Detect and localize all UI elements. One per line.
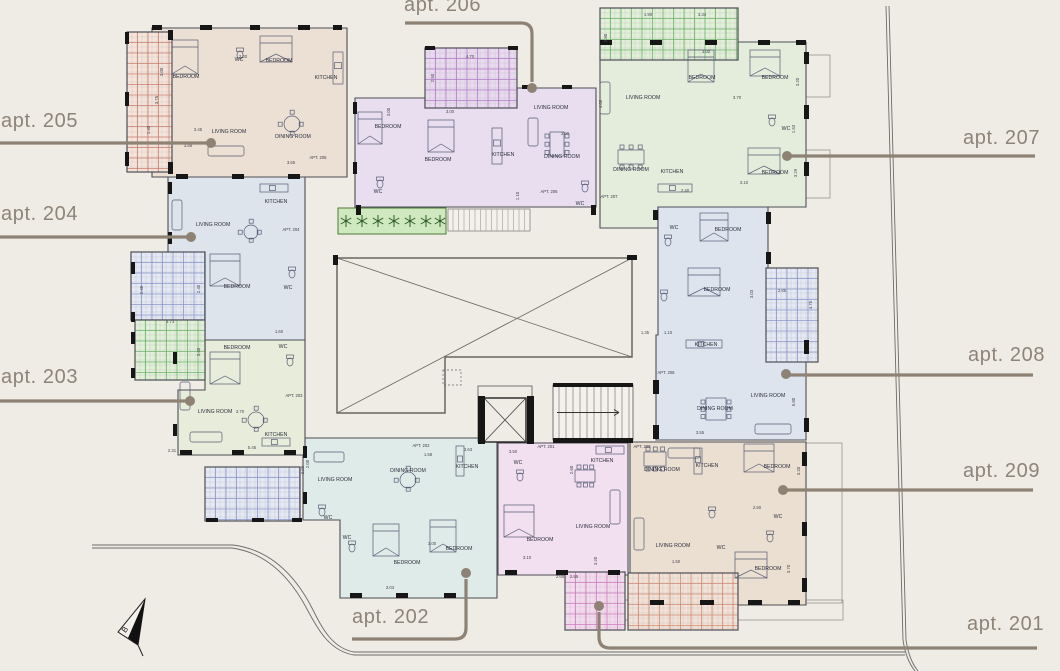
entry-steps — [448, 209, 530, 231]
dimension-text: 3.34 — [698, 12, 707, 17]
leader-dot-c203 — [185, 396, 195, 406]
leader-dot-c204 — [186, 232, 196, 242]
room-label: LIVING ROOM — [534, 105, 569, 111]
dimension-text: 3.40 — [196, 347, 201, 356]
dimension-text: 4.00 — [598, 99, 603, 108]
plant-center — [409, 220, 411, 222]
wall-segment — [804, 340, 809, 354]
room-label: WC — [576, 201, 585, 207]
unit-apt-203 — [135, 320, 305, 521]
room-label: DINING ROOM — [275, 134, 311, 140]
apt-label: apt. 209 — [963, 460, 1040, 482]
dimension-text: 3.10 — [740, 180, 749, 185]
balcony — [135, 320, 205, 380]
wall-segment — [125, 32, 129, 44]
wall-segment — [788, 600, 800, 605]
room-label: BEDROOM — [173, 74, 200, 80]
dimension-text: 1.40 — [146, 125, 151, 134]
unit-apt-201 — [498, 443, 628, 630]
dimension-text: 1.60 — [275, 329, 284, 334]
apt-label: apt. 206 — [404, 0, 481, 16]
room-label: BEDROOM — [224, 284, 251, 290]
wall-segment — [168, 162, 173, 174]
wall-segment — [173, 352, 177, 364]
wall-segment — [505, 570, 517, 575]
balcony — [205, 467, 300, 521]
room-label: LIVING ROOM — [198, 409, 233, 415]
apt-label: apt. 205 — [1, 110, 78, 132]
dimension-text: 3.00 — [159, 67, 164, 76]
unit-area — [600, 42, 806, 228]
leader-dot-c209 — [778, 485, 788, 495]
plant-center — [345, 220, 347, 222]
wall-segment — [131, 368, 135, 378]
steps-outline — [448, 209, 530, 231]
room-label: DINING ROOM — [544, 154, 580, 160]
leader-dot-c201 — [594, 601, 604, 611]
dimension-text: 5.80 — [791, 397, 796, 406]
dimension-text: 2.40 — [239, 54, 248, 59]
wall-segment — [653, 210, 658, 220]
dimension-text: 2.65 — [556, 574, 565, 579]
room-label: DINING ROOM — [697, 406, 733, 412]
dimension-text: 3.00 — [428, 541, 437, 546]
room-label: BEDROOM — [689, 75, 716, 81]
dimension-text: 2.50 — [430, 73, 435, 82]
room-label: BEDROOM — [527, 537, 554, 543]
room-label: LIVING ROOM — [576, 524, 611, 530]
room-label: BEDROOM — [394, 560, 421, 566]
wall-segment — [284, 450, 296, 455]
wall-segment — [804, 105, 809, 119]
dimension-text: 3.55 — [696, 430, 705, 435]
wall-segment — [804, 418, 809, 432]
wall-segment — [608, 570, 620, 575]
wall-segment — [131, 262, 135, 274]
planter — [338, 208, 446, 234]
dimension-text: 3.73 — [166, 319, 175, 324]
dimension-text: 3.00 — [561, 131, 570, 136]
unit-ref-text: APT. 209 — [634, 444, 652, 449]
unit-apt-207 — [600, 8, 806, 228]
wall-segment — [350, 593, 362, 598]
wall-segment — [553, 383, 633, 387]
wall-segment — [591, 205, 596, 215]
balcony — [127, 32, 172, 172]
unit-ref-text: APT. 208 — [658, 370, 676, 375]
dimension-text: 3.65 — [287, 160, 296, 165]
room-label: WC — [774, 514, 783, 520]
room-label: BEDROOM — [425, 157, 452, 163]
apt-callout-205: apt. 205 — [1, 110, 78, 133]
wall-segment — [180, 450, 192, 455]
room-label: KITCHEN — [265, 199, 288, 205]
planter-bed — [338, 208, 446, 234]
dimension-text: 1.35 — [641, 330, 650, 335]
room-label: BEDROOM — [762, 170, 789, 176]
dimension-text: 3.00 — [702, 49, 711, 54]
wall-segment — [748, 600, 762, 605]
dimension-text: 3.20 — [593, 556, 598, 565]
room-label: DINING ROOM — [613, 167, 649, 173]
wall-segment — [131, 332, 135, 344]
dimension-text: 2.40 — [681, 188, 690, 193]
apt-label: apt. 204 — [1, 203, 78, 225]
leader-dot-c205 — [206, 138, 216, 148]
north-arrow: B — [118, 599, 145, 656]
wall-segment — [766, 252, 771, 264]
room-label: LIVING ROOM — [318, 477, 353, 483]
courtyard-diagonal — [337, 258, 632, 357]
wall-segment — [356, 205, 361, 215]
plant-center — [377, 220, 379, 222]
dimension-text: 5.45 — [248, 445, 257, 450]
plant-center — [361, 220, 363, 222]
room-label: BEDROOM — [764, 464, 791, 470]
dimension-text: 2.00 — [305, 459, 310, 468]
dimension-text: 4.75 — [808, 300, 813, 309]
wall-segment — [303, 446, 307, 458]
wall-segment — [804, 162, 809, 176]
wall-segment — [627, 255, 637, 260]
unit-ref-text: APT. 204 — [283, 227, 301, 232]
unit-ref-text: APT. 202 — [413, 443, 431, 448]
wall-segment — [168, 30, 173, 40]
leader-dot-c206 — [527, 83, 537, 93]
dimension-text: 3.75 — [154, 95, 159, 104]
balcony — [600, 8, 738, 60]
apt-callout-207: apt. 207 — [963, 127, 1040, 150]
dimension-text: 3.20 — [795, 77, 800, 86]
room-label: KITCHEN — [315, 75, 338, 81]
wall-segment — [508, 46, 518, 50]
wall-segment — [396, 593, 408, 598]
leader-dot-c207 — [782, 151, 792, 161]
apt-callout-201: apt. 201 — [967, 613, 1044, 636]
staircase — [553, 385, 633, 440]
room-label: BEDROOM — [762, 75, 789, 81]
dimension-text: 3.70 — [786, 564, 791, 573]
plant-center — [439, 220, 441, 222]
wall-segment — [444, 593, 456, 598]
unit-ref-text: APT. 201 — [538, 444, 556, 449]
room-label: BEDROOM — [755, 566, 782, 572]
dimension-text: 2.80 — [603, 33, 608, 42]
dimension-text: 3.70 — [733, 95, 742, 100]
wall-segment — [173, 424, 177, 436]
unit-ref-text: APT. 206 — [541, 189, 559, 194]
wall-segment — [650, 600, 664, 605]
dimension-text: 3.20 — [796, 466, 801, 475]
wall-segment — [200, 25, 212, 30]
apt-label: apt. 202 — [352, 606, 429, 628]
apt-callout-208: apt. 208 — [968, 344, 1045, 367]
leader-dot-c208 — [781, 369, 791, 379]
dimension-text: 4.70 — [466, 54, 475, 59]
room-label: LIVING ROOM — [656, 543, 691, 549]
wall-segment — [562, 85, 572, 89]
room-label: LIVING ROOM — [212, 129, 247, 135]
wall-segment — [232, 174, 244, 179]
wall-segment — [131, 312, 135, 322]
apt-callout-204: apt. 204 — [1, 203, 78, 226]
apt-label: apt. 201 — [967, 613, 1044, 635]
room-label: WC — [782, 126, 791, 132]
room-label: WC — [279, 344, 288, 350]
room-label: LIVING ROOM — [196, 222, 231, 228]
dimension-text: 2.55 — [570, 574, 579, 579]
dimension-text: 3.10 — [523, 555, 532, 560]
wall-segment — [206, 518, 218, 522]
room-label: WC — [343, 535, 352, 541]
room-label: KITCHEN — [661, 169, 684, 175]
room-label: WC — [324, 515, 333, 521]
dimension-text: 1.53 — [791, 124, 796, 133]
wall-segment — [333, 255, 338, 265]
wall-segment — [425, 46, 435, 50]
wall-segment — [232, 450, 244, 455]
wall-segment — [527, 396, 534, 444]
wall-segment — [298, 25, 310, 30]
dimension-text: 3.50 — [509, 449, 518, 454]
wall-segment — [303, 492, 307, 504]
room-label: BEDROOM — [704, 287, 731, 293]
road-line — [886, 6, 915, 671]
wall-segment — [804, 52, 809, 64]
apt-label: apt. 208 — [968, 344, 1045, 366]
dimension-text: 1.90 — [644, 12, 653, 17]
unit-ref-text: APT. 203 — [286, 393, 304, 398]
room-label: WC — [284, 285, 293, 291]
dimension-text: 3.00 — [386, 107, 391, 116]
floor-plan-page: { "title": "apartment floor plan", "pale… — [0, 0, 1060, 671]
wall-segment — [353, 102, 357, 114]
wall-segment — [653, 425, 659, 439]
wall-segment — [252, 518, 264, 522]
room-label: KITCHEN — [456, 464, 479, 470]
plant-center — [425, 220, 427, 222]
wall-segment — [333, 25, 342, 30]
apt-label: apt. 207 — [963, 127, 1040, 149]
dimension-text: 2.85 — [778, 288, 787, 293]
room-label: BEDROOM — [375, 124, 402, 130]
floor-plan-drawing: BEDROOMWCBEDROOMKITCHENLIVING ROOMDINING… — [0, 0, 1060, 671]
wall-segment — [176, 174, 188, 179]
plant-center — [393, 220, 395, 222]
wall-segment — [553, 438, 633, 443]
wall-segment — [353, 162, 357, 174]
dimension-text: 2.48 — [139, 285, 144, 294]
dimension-text: 3.29 — [793, 168, 798, 177]
road-line — [889, 6, 918, 671]
room-label: LIVING ROOM — [626, 95, 661, 101]
apt-callout-209: apt. 209 — [963, 460, 1040, 483]
apt-label: apt. 203 — [1, 366, 78, 388]
room-label: DINING ROOM — [390, 468, 426, 474]
room-label: WC — [670, 225, 679, 231]
room-label: BEDROOM — [266, 58, 293, 64]
dimension-text: 3.00 — [446, 109, 455, 114]
balcony — [766, 268, 818, 362]
wall-segment — [802, 522, 807, 536]
dimension-text: 3.03 — [386, 585, 395, 590]
apt-callout-206: apt. 206 — [404, 0, 481, 17]
dimension-text: 2.31 — [168, 448, 177, 453]
wall-segment — [288, 174, 300, 179]
dimension-text: 3.03 — [749, 289, 754, 298]
dimension-text: 3.45 — [194, 127, 203, 132]
wall-segment — [650, 40, 662, 45]
dimension-text: 1.10 — [664, 330, 673, 335]
room-label: KITCHEN — [492, 152, 515, 158]
wall-segment — [766, 212, 771, 224]
apt-callout-203: apt. 203 — [1, 366, 78, 389]
dimension-text: 3.70 — [236, 409, 245, 414]
wall-segment — [478, 396, 485, 444]
dimension-text: 2.50 — [753, 505, 762, 510]
dimension-text: 1.58 — [424, 452, 433, 457]
wall-segment — [653, 380, 659, 394]
wall-segment — [152, 25, 162, 30]
room-label: BEDROOM — [715, 227, 742, 233]
room-label: KITCHEN — [695, 342, 718, 348]
room-label: KITCHEN — [696, 463, 719, 469]
dimension-text: 1.50 — [672, 559, 681, 564]
wall-segment — [168, 182, 172, 194]
unit-ref-text: APT. 207 — [601, 194, 619, 199]
room-label: BEDROOM — [446, 546, 473, 552]
wall-segment — [705, 40, 717, 45]
terrace-outline — [806, 55, 830, 97]
unit-ref-text: APT. 205 — [310, 155, 328, 160]
wall-segment — [125, 92, 129, 106]
terrace-outline — [806, 443, 842, 603]
balcony-floor — [205, 467, 300, 521]
wall-segment — [796, 40, 806, 45]
room-label: DINING ROOM — [644, 467, 680, 473]
room-label: WC — [514, 460, 523, 466]
wall-segment — [250, 25, 260, 30]
wall-segment — [292, 518, 302, 522]
wall-segment — [700, 600, 714, 605]
wall-segment — [802, 452, 807, 466]
balcony — [565, 572, 625, 630]
wall-segment — [125, 152, 129, 166]
room-label: WC — [374, 189, 383, 195]
north-arrow-tail — [138, 645, 143, 656]
dimension-text: 1.10 — [515, 191, 520, 200]
apt-callout-202: apt. 202 — [352, 606, 429, 629]
leader-dot-c202 — [461, 568, 471, 578]
room-label: KITCHEN — [265, 432, 288, 438]
wall-segment — [758, 40, 770, 45]
balcony — [628, 573, 738, 630]
dimension-text: 2.60 — [569, 465, 574, 474]
dimension-text: 3.63 — [464, 447, 473, 452]
dimension-text: 2.40 — [196, 284, 201, 293]
wall-segment — [802, 578, 807, 592]
room-label: WC — [717, 545, 726, 551]
room-label: KITCHEN — [591, 458, 614, 464]
room-label: LIVING ROOM — [751, 393, 786, 399]
room-label: BEDROOM — [224, 345, 251, 351]
